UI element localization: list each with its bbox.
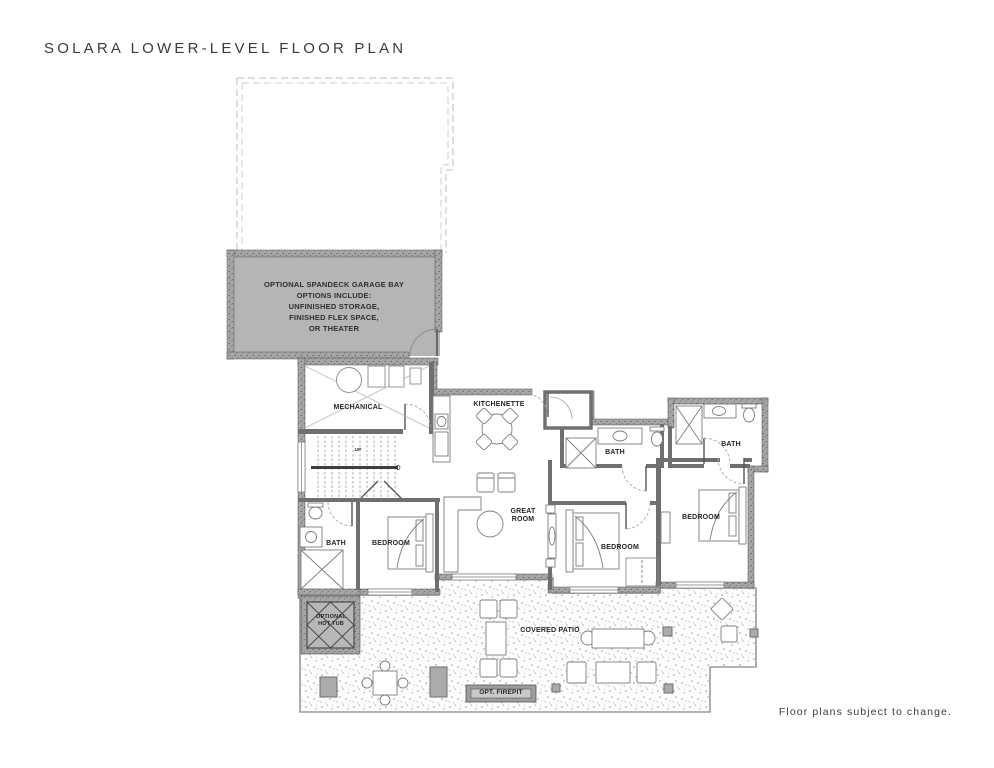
label-bath-middle: BATH: [595, 449, 635, 457]
label-bath-right: BATH: [711, 441, 751, 449]
garage-note-line: FINISHED FLEX SPACE,: [239, 312, 429, 323]
garage-note-line: UNFINISHED STORAGE,: [239, 301, 429, 312]
label-bedroom-middle: BEDROOM: [590, 544, 650, 552]
bath-right-fixtures: [676, 404, 756, 444]
upper-level-dashed-outline: [237, 78, 453, 253]
garage-note-line: OPTIONS INCLUDE:: [239, 290, 429, 301]
footer-note: Floor plans subject to change.: [779, 706, 952, 718]
exterior-walls: [298, 358, 768, 598]
garage-note-line: OPTIONAL SPANDECK GARAGE BAY: [239, 279, 429, 290]
garage-note-line: OR THEATER: [239, 323, 429, 334]
label-kitchenette: KITCHENETTE: [459, 401, 539, 409]
bath-middle-fixtures: [566, 427, 664, 468]
label-mechanical: MECHANICAL: [318, 404, 398, 412]
floor-plan-drawing: [0, 0, 994, 768]
linen-closet: [545, 392, 591, 428]
mechanical-room: [305, 366, 429, 428]
label-bath-left: BATH: [316, 540, 356, 548]
page-title: SOLARA LOWER-LEVEL FLOOR PLAN: [44, 40, 406, 57]
garage-bay-note: OPTIONAL SPANDECK GARAGE BAY OPTIONS INC…: [239, 279, 429, 334]
floor-plan-page: SOLARA LOWER-LEVEL FLOOR PLAN Floor plan…: [0, 0, 994, 768]
stairs: [311, 436, 400, 497]
label-bedroom-right: BEDROOM: [671, 514, 731, 522]
label-great-room: GREAT ROOM: [502, 508, 544, 525]
label-stairs-up: UP: [348, 447, 368, 452]
label-covered-patio: COVERED PATIO: [510, 627, 590, 635]
label-hot-tub: OPTIONAL HOT TUB: [313, 614, 349, 627]
label-firepit: OPT. FIREPIT: [466, 689, 536, 697]
label-bedroom-left: BEDROOM: [361, 540, 421, 548]
